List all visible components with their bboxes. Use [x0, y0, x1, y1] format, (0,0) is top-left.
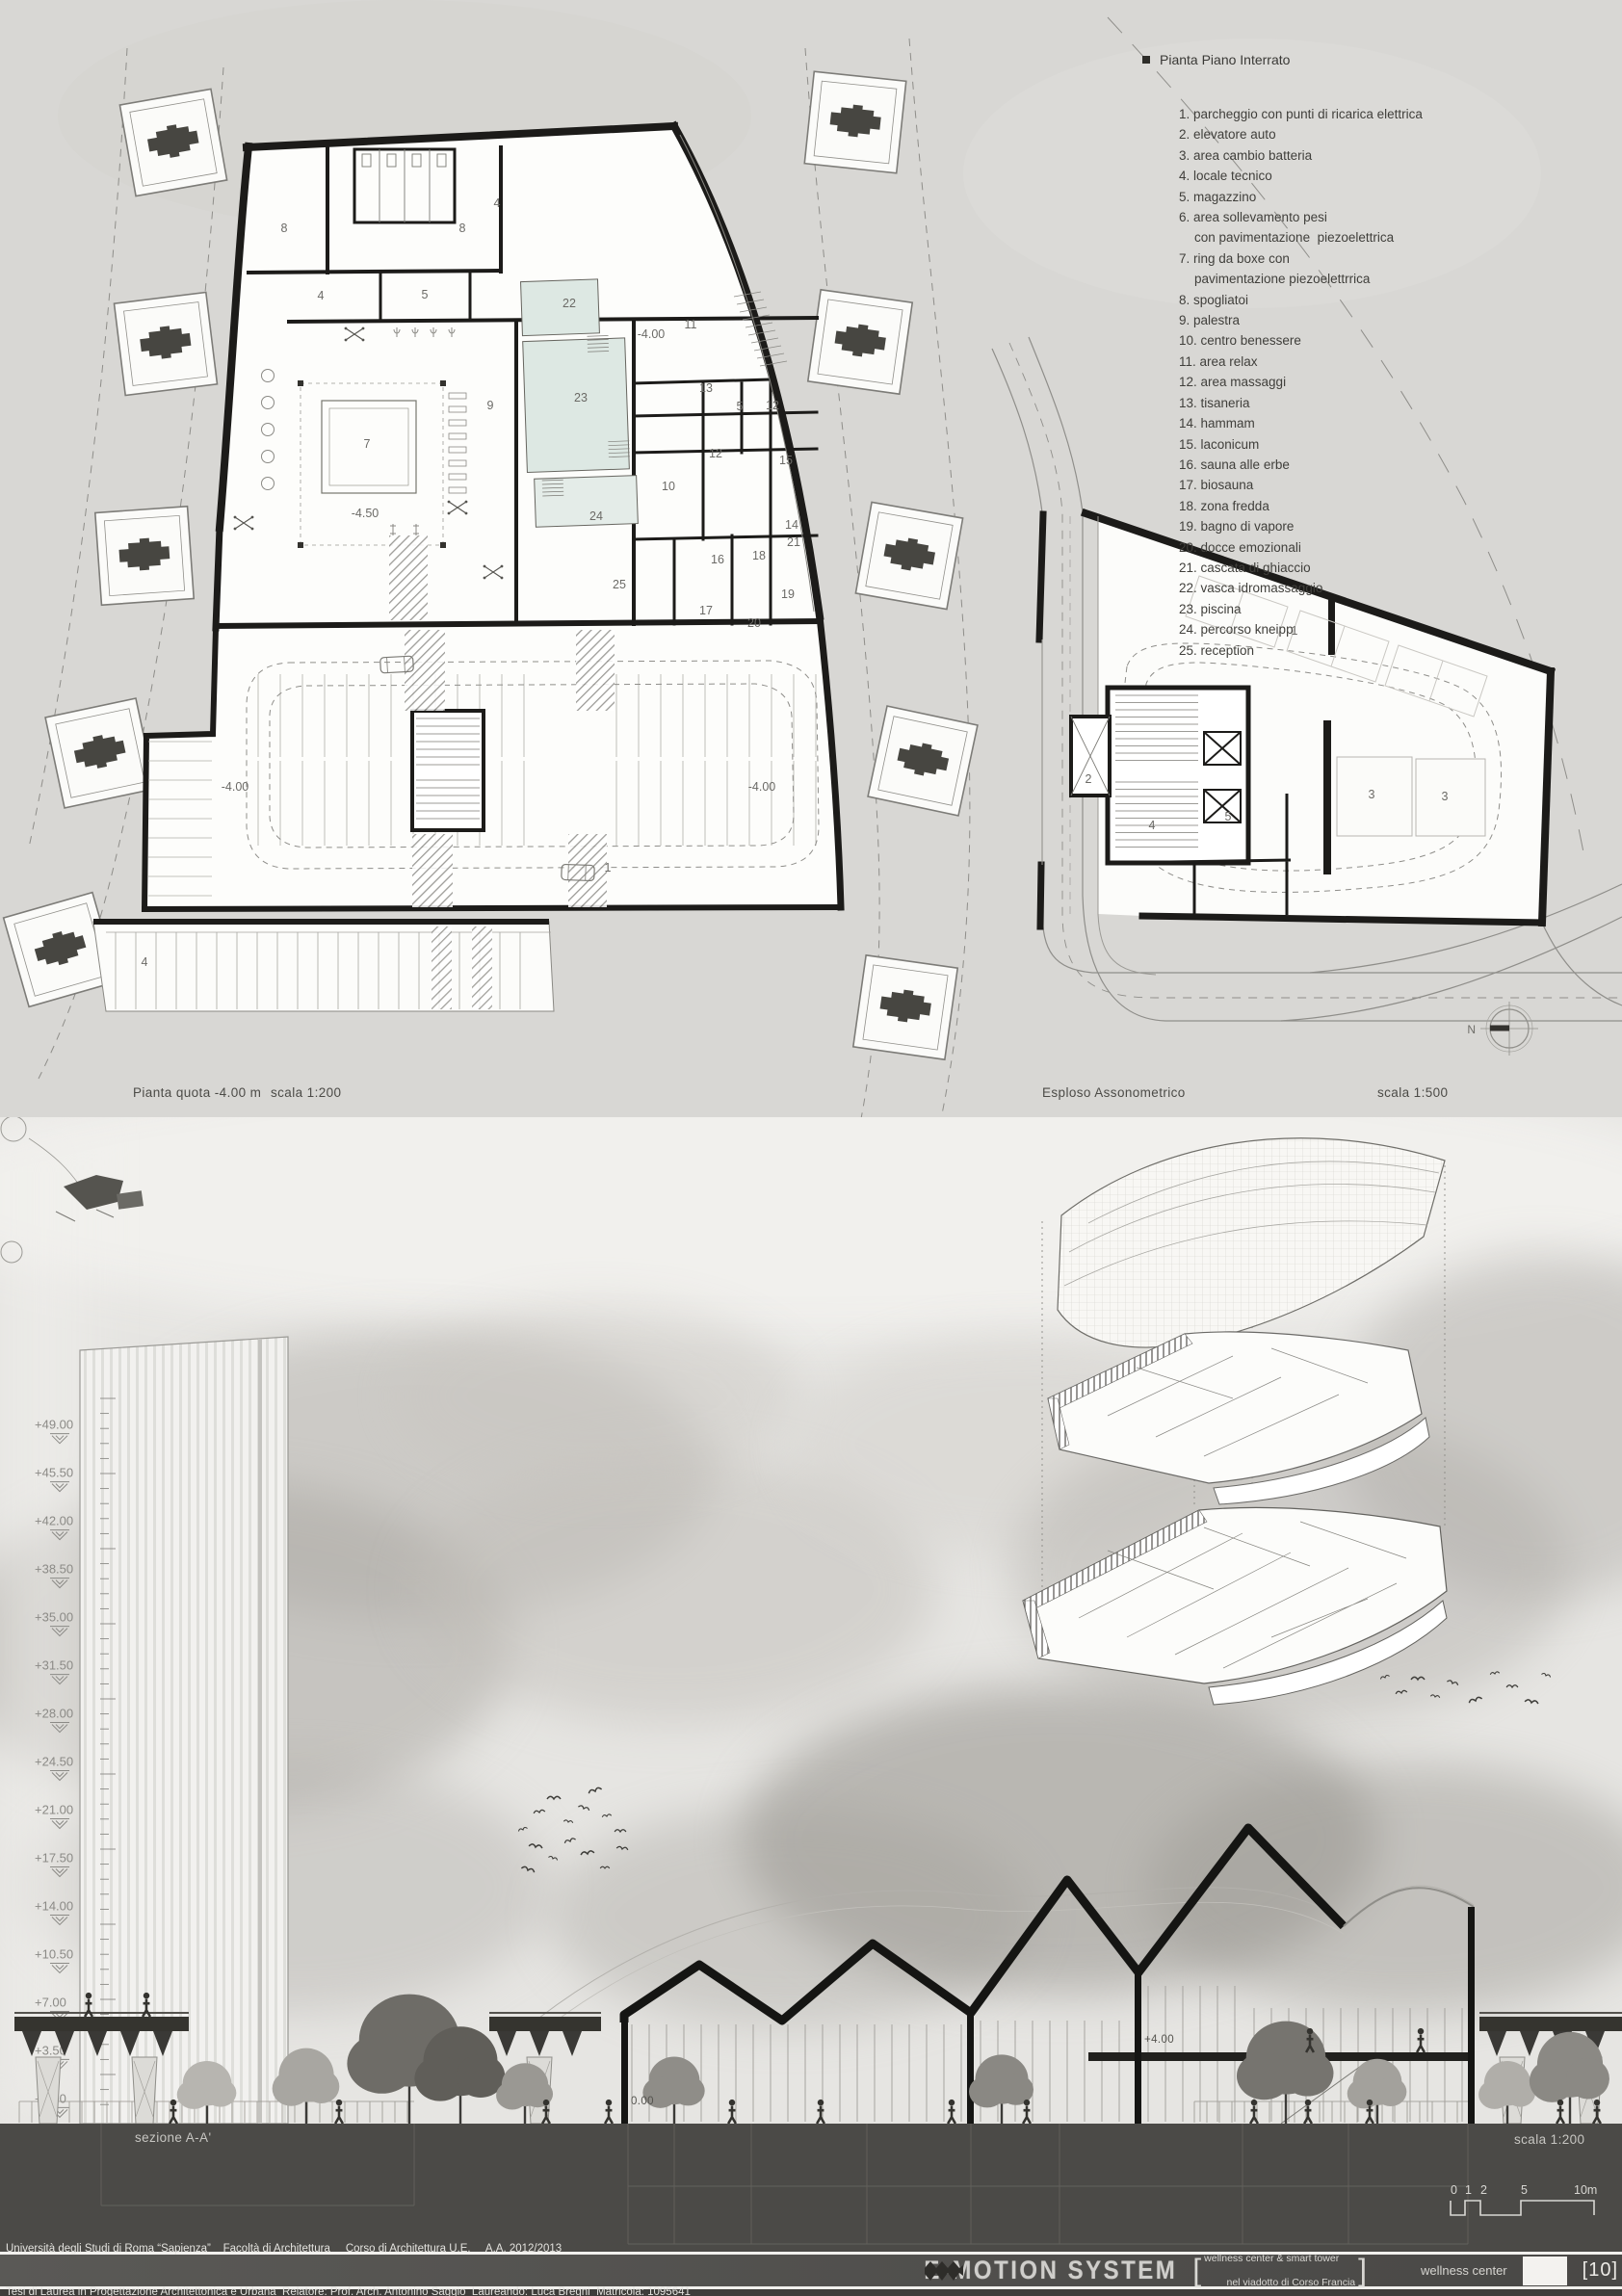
legend-title: Pianta Piano Interrato [1160, 52, 1290, 67]
room-number: 25 [613, 578, 626, 591]
credits-block: Università degli Studi di Roma “Sapienza… [0, 2213, 691, 2296]
legend-item: 13. tisaneria [1179, 393, 1547, 413]
room-number: 10 [662, 480, 675, 493]
room-number: 20 [747, 616, 761, 630]
room-number: 1 [605, 861, 612, 874]
title-block: Università degli Studi di Roma “Sapienza… [0, 2252, 1622, 2296]
room-number: 4 [318, 289, 325, 302]
room-number: 22 [562, 297, 576, 310]
legend-item: 11. area relax [1179, 352, 1547, 372]
bracket-left: [ [1192, 2258, 1201, 2283]
elevation-label: +42.00 [35, 1514, 73, 1528]
section-and-axonometric: +49.00+45.50+42.00+38.50+35.00+31.50+28.… [0, 1117, 1622, 2296]
studio-logo [1523, 2257, 1567, 2285]
room-number: 4 [142, 955, 148, 969]
legend-item: 16. sauna alle erbe [1179, 455, 1547, 475]
section-level-four: +4.00 [1144, 2034, 1174, 2046]
section-scale-caption: scala 1:200 [1514, 2132, 1584, 2147]
scale-bar-label: 10m [1574, 2183, 1597, 2197]
room-number: 7 [364, 437, 371, 451]
scale-bar-label: 5 [1521, 2183, 1528, 2197]
elevation-label: +35.00 [35, 1610, 73, 1625]
legend-item: 18. zona fredda [1179, 496, 1547, 516]
legend-item: 8. spogliatoi [1179, 290, 1547, 310]
legend-item: 12. area massaggi [1179, 372, 1547, 392]
legend-item: 3. area cambio batteria [1179, 145, 1547, 166]
legend-item: 9. palestra [1179, 310, 1547, 330]
bracket-right: ] [1358, 2258, 1367, 2283]
room-number: 5 [737, 400, 744, 413]
room-number: 24 [589, 509, 603, 523]
project-subtitle: [ wellness center & smart tower nel viad… [1192, 2253, 1367, 2289]
scale-bar-label: 0 [1451, 2183, 1457, 2197]
room-number: 12 [709, 447, 722, 460]
north-compass: N [1467, 1002, 1538, 1056]
room-number: 23 [574, 391, 588, 404]
scale-bar-label: 2 [1480, 2183, 1487, 2197]
plan-caption: Pianta quota -4.00 m [133, 1085, 261, 1100]
room-number: 12 [766, 399, 779, 412]
wellness-plan [93, 126, 841, 1011]
legend-item: 20. docce emozionali [1179, 537, 1547, 558]
room-number: 4 [1149, 819, 1156, 832]
sheet-category-label: wellness center [1421, 2263, 1507, 2278]
room-number: -4.00 [222, 780, 249, 794]
smart-tower [80, 1337, 288, 2124]
axo-scale-caption: scala 1:500 [1377, 1085, 1448, 1100]
legend-item: 24. percorso kneipp [1179, 619, 1547, 639]
room-number: 18 [752, 549, 766, 562]
legend-item: 21. cascata di ghiaccio [1179, 558, 1547, 578]
room-number: 5 [1225, 810, 1232, 823]
legend-item: 7. ring da boxe conpavimentazione piezoe… [1179, 248, 1547, 290]
room-number: -4.50 [352, 507, 379, 520]
legend-item: 4. locale tecnico [1179, 166, 1547, 186]
elevation-label: +28.00 [35, 1707, 73, 1721]
section-level-zero: 0.00 [631, 2096, 654, 2107]
exploded-axonometric [1023, 1138, 1447, 1705]
room-number: 3 [1369, 788, 1375, 801]
legend-item: 6. area sollevamento pesicon pavimentazi… [1179, 207, 1547, 248]
elevation-label: +45.50 [35, 1466, 73, 1480]
room-number: 8 [459, 222, 466, 235]
elevation-label: +24.50 [35, 1755, 73, 1769]
elevation-label: +10.50 [35, 1946, 73, 1961]
scale-bar-label: 1 [1465, 2183, 1472, 2197]
presentation-board: 8844597-4.50222324-4.0011135121215101421… [0, 0, 1622, 2296]
elevation-label: +38.50 [35, 1562, 73, 1577]
subtitle-line-1: wellness center & smart tower [1204, 2253, 1339, 2264]
room-number: 9 [487, 399, 494, 412]
compass-n-label: N [1467, 1023, 1476, 1036]
elevation-label: +7.00 [35, 1995, 66, 2009]
section-caption: sezione A-A' [135, 2130, 211, 2145]
subtitle-line-2: nel viadotto di Corso Francia [1226, 2277, 1355, 2288]
elevation-label: +21.00 [35, 1803, 73, 1817]
room-number: 5 [422, 288, 429, 301]
legend-item: 10. centro benessere [1179, 330, 1547, 351]
elevation-label: +31.50 [35, 1658, 73, 1673]
axo-caption: Esploso Assonometrico [1042, 1085, 1186, 1100]
legend-item: 1. parcheggio con punti di ricarica elet… [1179, 104, 1547, 124]
elevation-label: +49.00 [35, 1418, 73, 1432]
room-number: 3 [1442, 790, 1449, 803]
zigzag-logo-icon [924, 2258, 964, 2283]
room-number: 21 [787, 535, 800, 549]
legend-item: 5. magazzino [1179, 187, 1547, 207]
sheet-number: [10] [1583, 2259, 1618, 2282]
room-number: -4.00 [638, 327, 666, 341]
legend-item: 22. vasca idromassaggio [1179, 578, 1547, 598]
room-number: 17 [699, 604, 713, 617]
room-number: -4.00 [748, 780, 776, 794]
legend-item: 25. reception [1179, 640, 1547, 661]
elevation-label: +17.50 [35, 1851, 73, 1865]
room-number: 14 [785, 518, 798, 532]
legend-item: 23. piscina [1179, 599, 1547, 619]
credits-line-1: Università degli Studi di Roma “Sapienza… [6, 2242, 691, 2257]
plan-legend: Pianta Piano Interrato 1. parcheggio con… [1142, 52, 1547, 661]
legend-item: 19. bagno di vapore [1179, 516, 1547, 536]
room-number: 8 [281, 222, 288, 235]
room-number: 19 [781, 587, 795, 601]
room-number: 15 [779, 454, 793, 467]
legend-bullet-icon [1142, 56, 1150, 64]
legend-item: 15. laconicum [1179, 434, 1547, 455]
legend-item: 17. biosauna [1179, 475, 1547, 495]
legend-item: 14. hammam [1179, 413, 1547, 433]
credits-line-2: Tesi di Laurea in Progettazione Architet… [6, 2285, 691, 2296]
room-number: 16 [711, 553, 724, 566]
elevation-label: +14.00 [35, 1898, 73, 1913]
plan-scale-caption: scala 1:200 [271, 1085, 341, 1100]
room-number: 4 [494, 196, 501, 210]
room-number: 2 [1086, 772, 1092, 786]
room-number: 11 [685, 318, 697, 331]
legend-item: 2. elevatore auto [1179, 124, 1547, 144]
room-number: 13 [699, 381, 713, 395]
